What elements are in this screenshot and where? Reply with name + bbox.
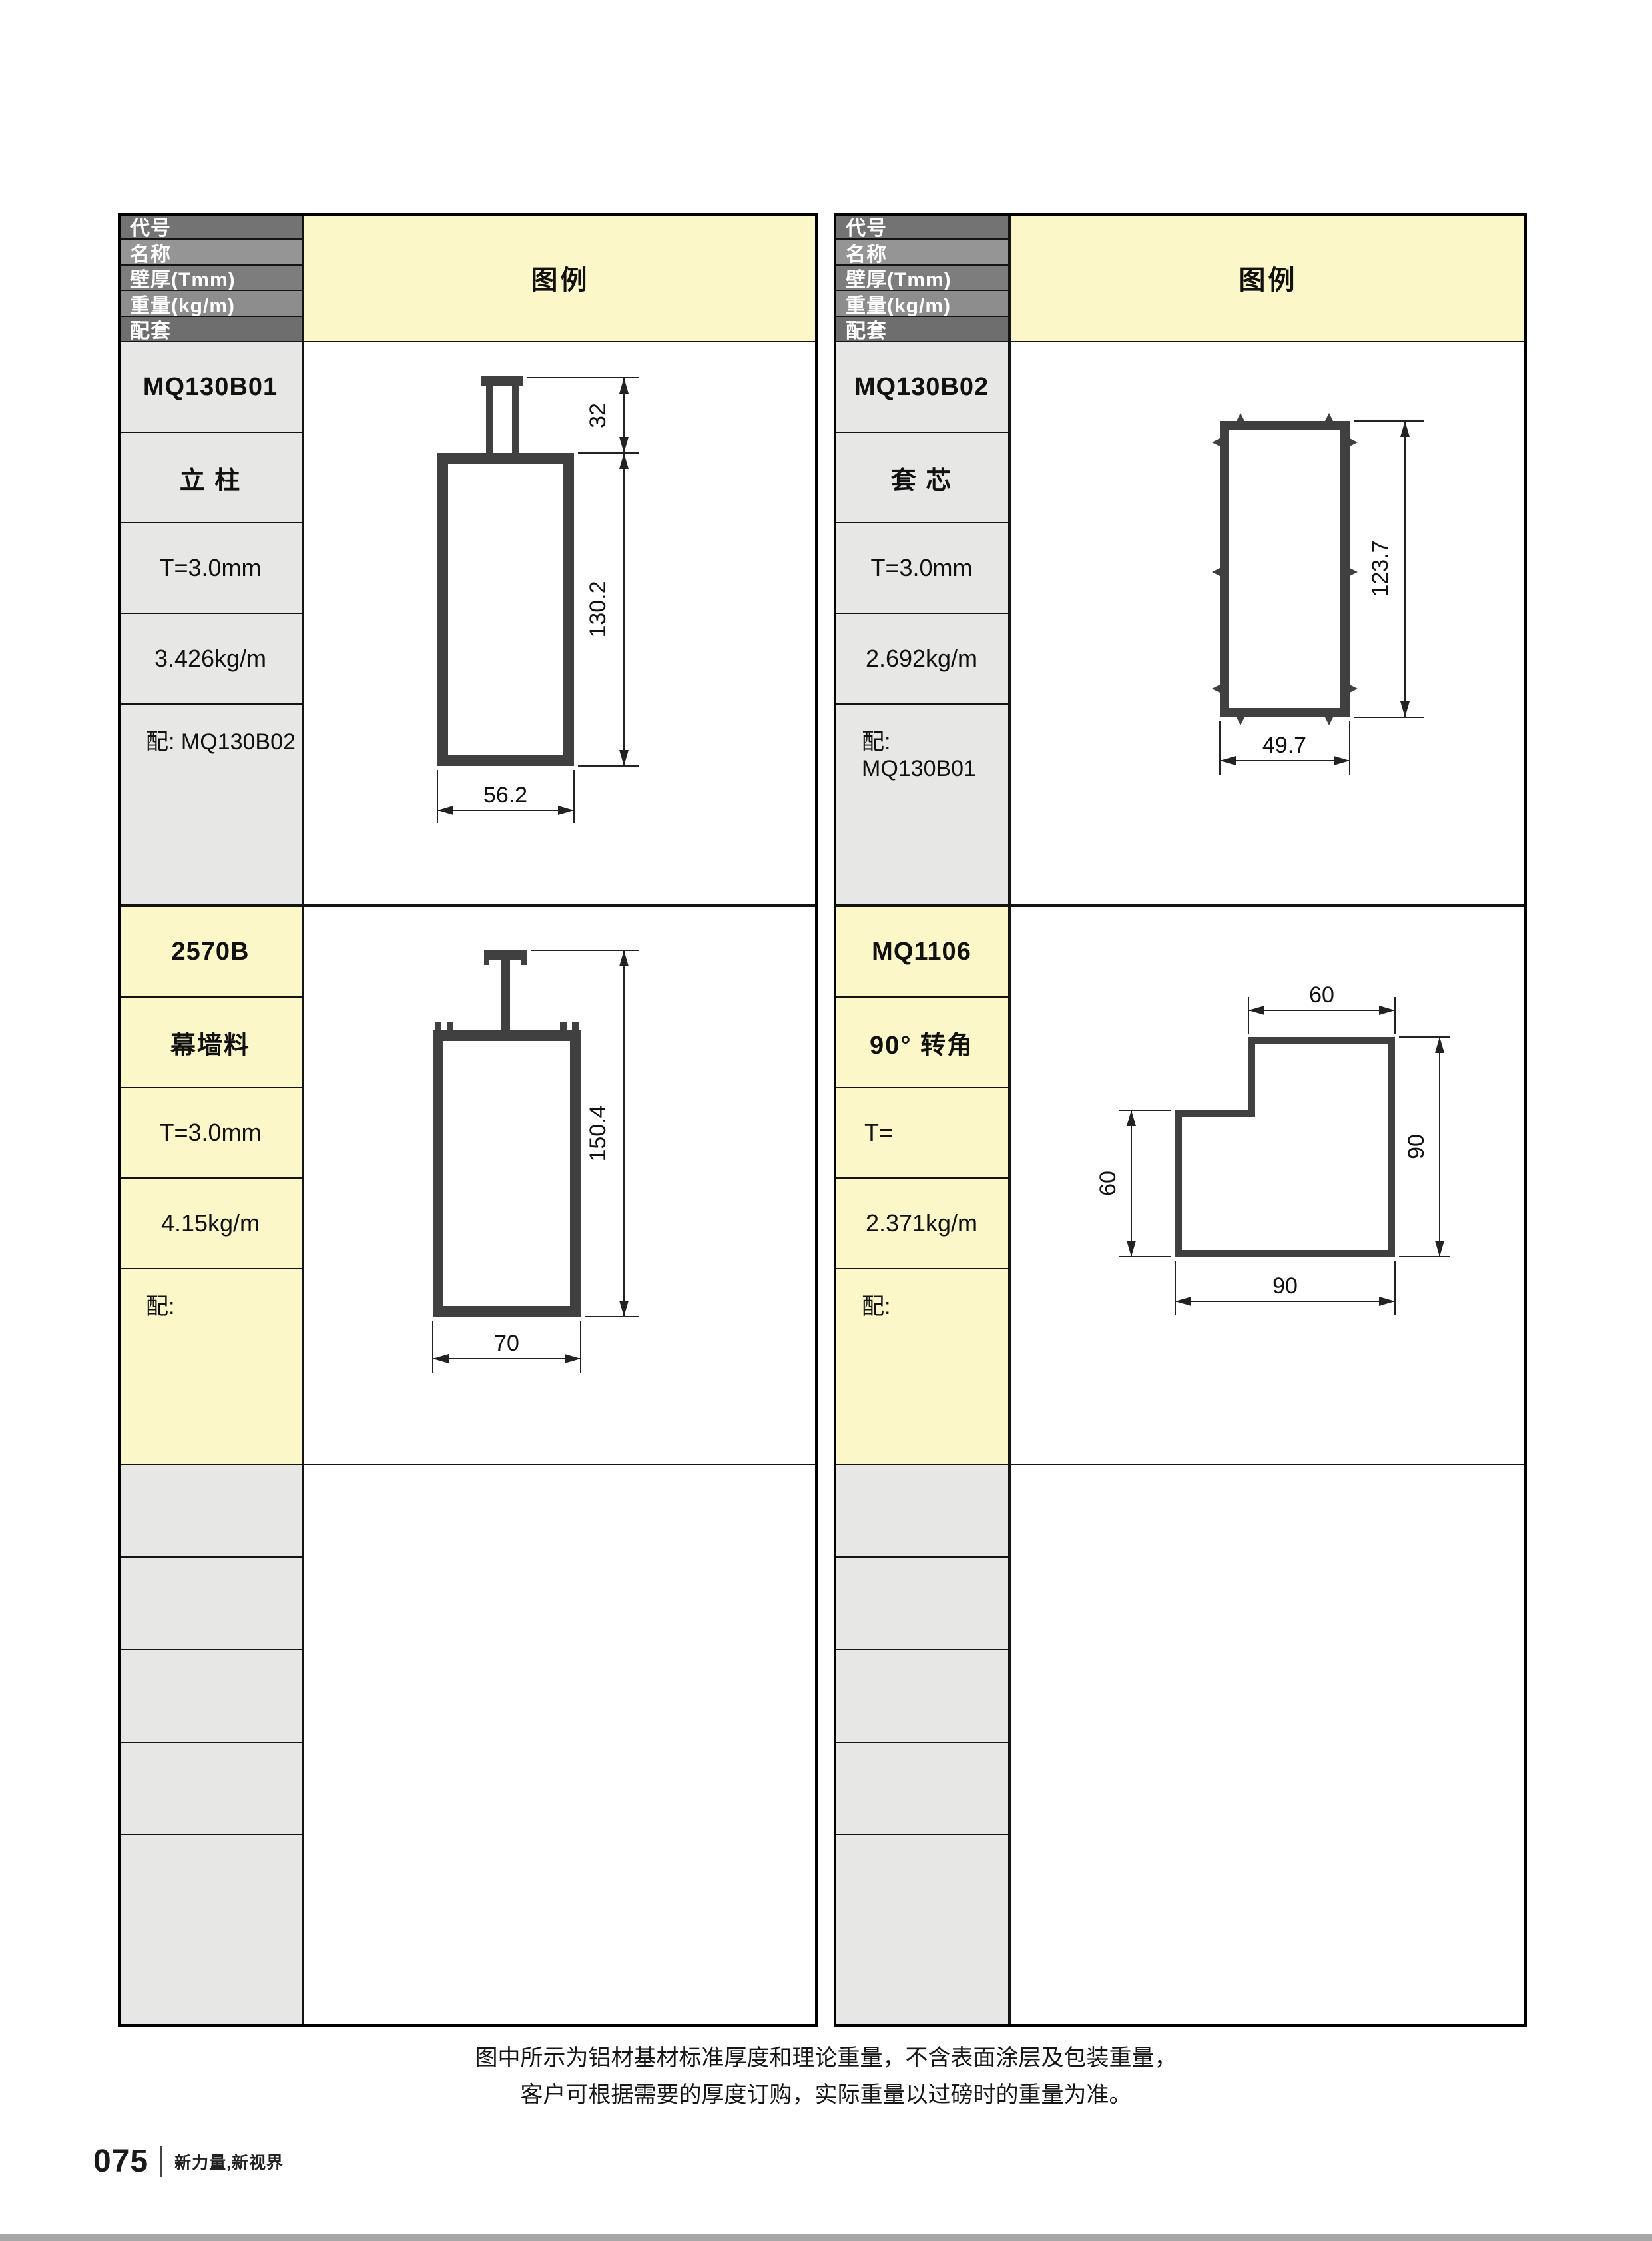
dim-width: 70 (494, 1331, 519, 1356)
dim-bottom: 90 (1272, 1273, 1298, 1299)
right-row2-weight: 2.371kg/m (834, 1177, 1009, 1269)
page-footer: 075 新力量,新视界 (93, 2143, 284, 2180)
left-header-weight: 重量(kg/m) (118, 290, 303, 317)
product-weight: 3.426kg/m (154, 645, 266, 673)
product-match: 配: MQ130B02 (146, 723, 296, 756)
product-name: 90° 转角 (870, 1024, 973, 1061)
dimension-arrows (1127, 1006, 1444, 1306)
header-match-label: 配套 (846, 314, 887, 344)
right-header-code: 代号 (834, 213, 1009, 240)
left-empty-row-1 (118, 1464, 303, 1558)
left-legend-title: 图例 (303, 213, 818, 342)
dim-stub-height: 32 (585, 403, 611, 428)
right-legend-title: 图例 (1009, 213, 1527, 342)
profile-notches (1212, 413, 1358, 725)
right-row1-name: 套 芯 (834, 432, 1009, 523)
right-header-thickness: 壁厚(Tmm) (834, 264, 1009, 291)
right-row2-code: MQ1106 (834, 906, 1009, 998)
left-header-code: 代号 (118, 213, 303, 240)
dim-top: 60 (1309, 982, 1334, 1008)
left-header-thickness: 壁厚(Tmm) (118, 264, 303, 291)
right-header-match: 配套 (834, 316, 1009, 342)
product-code: MQ130B01 (143, 373, 278, 402)
product-match: 配: (146, 1288, 174, 1321)
profile-drawing-2570b: 150.4 70 (304, 907, 819, 1465)
right-row1-code: MQ130B02 (834, 341, 1009, 433)
footer-slogan: 新力量,新视界 (174, 2150, 284, 2174)
profile-body (1220, 421, 1350, 717)
dim-width: 56.2 (483, 783, 527, 808)
product-weight: 4.15kg/m (161, 1209, 260, 1237)
left-header-name: 名称 (118, 238, 303, 266)
page-number: 075 (93, 2143, 148, 2180)
right-row1-thickness: T=3.0mm (834, 522, 1009, 614)
left-row1-name: 立 柱 (118, 432, 303, 523)
header-weight-label: 重量(kg/m) (130, 289, 235, 318)
left-row1-thickness: T=3.0mm (118, 522, 303, 614)
profile-body (437, 453, 574, 766)
right-row2-name: 90° 转角 (834, 996, 1009, 1088)
profile-body (433, 1030, 581, 1317)
dimension-lines (1220, 421, 1424, 775)
left-header-match: 配套 (118, 316, 303, 342)
dim-width: 49.7 (1262, 733, 1306, 758)
right-row2-drawing-cell: 60 90 60 90 (1009, 906, 1527, 1465)
profile-drawing-mq130b02: 123.7 49.7 (1011, 342, 1528, 907)
left-row2-thickness: T=3.0mm (118, 1087, 303, 1179)
dim-left: 60 (1095, 1171, 1121, 1196)
right-table: 代号 名称 壁厚(Tmm) 重量(kg/m) 配套 图例 MQ130B02 套 … (834, 213, 1527, 2027)
right-empty-row-3 (834, 1649, 1009, 1743)
header-thickness-label: 壁厚(Tmm) (846, 263, 952, 292)
left-empty-row-4 (118, 1742, 303, 1835)
profile-t-stem (484, 950, 527, 1030)
right-header-weight: 重量(kg/m) (834, 290, 1009, 317)
product-name: 立 柱 (180, 460, 242, 496)
product-weight: 2.371kg/m (866, 1209, 977, 1237)
right-row1-drawing-cell: 123.7 49.7 (1009, 341, 1527, 906)
product-thickness: T=3.0mm (159, 1119, 261, 1147)
footnote-line-2: 客户可根据需要的厚度订购，实际重量以过磅时的重量为准。 (0, 2077, 1652, 2109)
header-name-label: 名称 (130, 238, 171, 267)
left-empty-row-2 (118, 1556, 303, 1650)
legend-label: 图例 (1239, 258, 1298, 297)
left-row1-drawing-cell: 32 130.2 56.2 (303, 341, 818, 906)
right-row1-match: 配: MQ130B01 (834, 703, 1009, 906)
right-row1-weight: 2.692kg/m (834, 613, 1009, 705)
right-header-name: 名称 (834, 238, 1009, 266)
profile-body (1175, 1037, 1395, 1257)
header-name-label: 名称 (846, 238, 887, 267)
product-code: MQ130B02 (854, 373, 989, 402)
profile-stub (481, 376, 523, 453)
product-name: 套 芯 (891, 460, 953, 496)
dim-height: 123.7 (1368, 540, 1393, 597)
product-code: 2570B (172, 938, 250, 966)
left-row1-code: MQ130B01 (118, 341, 303, 433)
right-empty-row-1 (834, 1464, 1009, 1558)
product-thickness: T= (864, 1119, 893, 1147)
footnote-line-1: 图中所示为铝材基材标准厚度和理论重量，不含表面涂层及包装重量， (0, 2039, 1652, 2072)
header-code-label: 代号 (130, 212, 171, 241)
left-row1-weight: 3.426kg/m (118, 613, 303, 705)
right-empty-row-5 (834, 1834, 1009, 2027)
dim-body-height: 130.2 (585, 581, 611, 637)
left-empty-row-5 (118, 1834, 303, 2027)
left-row2-weight: 4.15kg/m (118, 1177, 303, 1269)
left-row2-match: 配: (118, 1268, 303, 1465)
product-weight: 2.692kg/m (866, 645, 977, 673)
header-thickness-label: 壁厚(Tmm) (130, 263, 236, 292)
product-thickness: T=3.0mm (870, 554, 972, 582)
right-row2-match: 配: (834, 1268, 1009, 1465)
right-row2-thickness: T= (834, 1087, 1009, 1179)
header-weight-label: 重量(kg/m) (846, 289, 951, 318)
product-code: MQ1106 (872, 938, 971, 966)
right-empty-row-2 (834, 1556, 1009, 1650)
profile-drawing-mq1106: 60 90 60 90 (1011, 907, 1528, 1465)
product-name: 幕墙料 (170, 1024, 250, 1061)
dimension-lines (1119, 997, 1450, 1315)
catalog-page: 代号 名称 壁厚(Tmm) 重量(kg/m) 配套 图例 MQ130B01 立 … (0, 0, 1652, 2241)
product-thickness: T=3.0mm (159, 554, 261, 582)
left-empty-row-3 (118, 1649, 303, 1743)
footer-divider (160, 2146, 162, 2177)
right-empty-drawing-cell (1009, 1464, 1527, 2027)
product-match: 配: MQ130B01 (862, 723, 1008, 782)
dim-height: 150.4 (585, 1105, 611, 1161)
right-empty-row-4 (834, 1742, 1009, 1835)
left-row2-code: 2570B (118, 906, 303, 998)
legend-label: 图例 (531, 258, 590, 297)
left-empty-drawing-cell (303, 1464, 818, 2027)
left-row2-drawing-cell: 150.4 70 (303, 906, 818, 1465)
header-match-label: 配套 (130, 314, 171, 344)
left-table: 代号 名称 壁厚(Tmm) 重量(kg/m) 配套 图例 MQ130B01 立 … (118, 213, 818, 2027)
dim-right: 90 (1404, 1134, 1429, 1159)
header-code-label: 代号 (846, 212, 887, 241)
product-match: 配: (862, 1288, 890, 1321)
left-row1-match: 配: MQ130B02 (118, 703, 303, 906)
left-row2-name: 幕墙料 (118, 996, 303, 1088)
bottom-bar (0, 2234, 1652, 2241)
profile-drawing-mq130b01: 32 130.2 56.2 (304, 342, 819, 907)
